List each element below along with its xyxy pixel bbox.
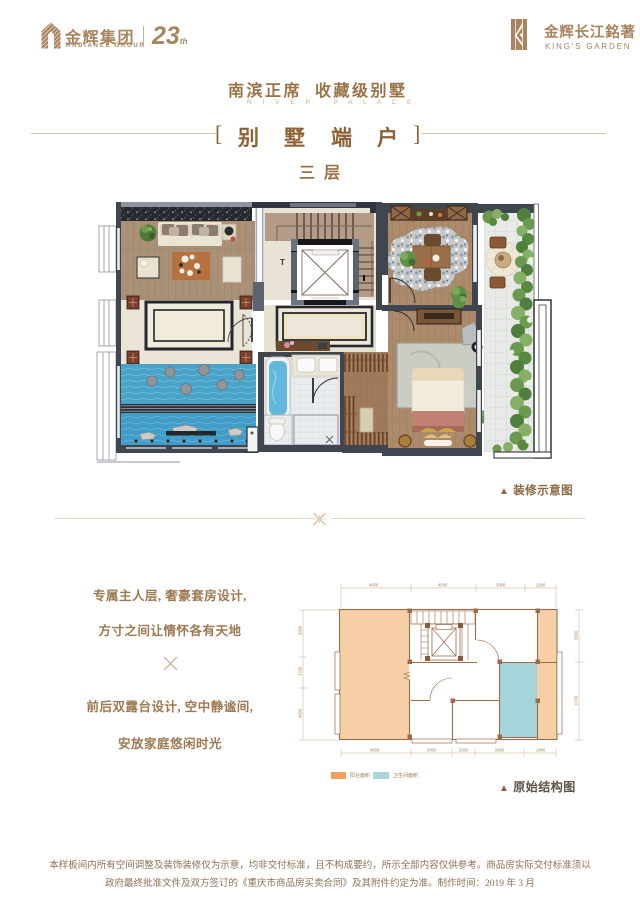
svg-text:4600: 4600 [369, 583, 379, 588]
svg-text:4600: 4600 [298, 708, 303, 718]
svg-text:3000: 3000 [496, 583, 506, 588]
svg-text:2400: 2400 [427, 748, 437, 753]
svg-text:6700: 6700 [574, 695, 579, 705]
svg-text:4000: 4000 [438, 583, 448, 588]
svg-text:1700: 1700 [298, 666, 303, 676]
svg-text:1500: 1500 [536, 583, 546, 588]
svg-text:3300: 3300 [298, 625, 303, 635]
svg-text:2400: 2400 [495, 748, 505, 753]
svg-text:T: T [280, 258, 285, 267]
svg-text:3300: 3300 [574, 630, 579, 640]
svg-text:1400: 1400 [536, 748, 546, 753]
svg-text:2000: 2000 [459, 748, 469, 753]
svg-text:4600: 4600 [370, 748, 380, 753]
